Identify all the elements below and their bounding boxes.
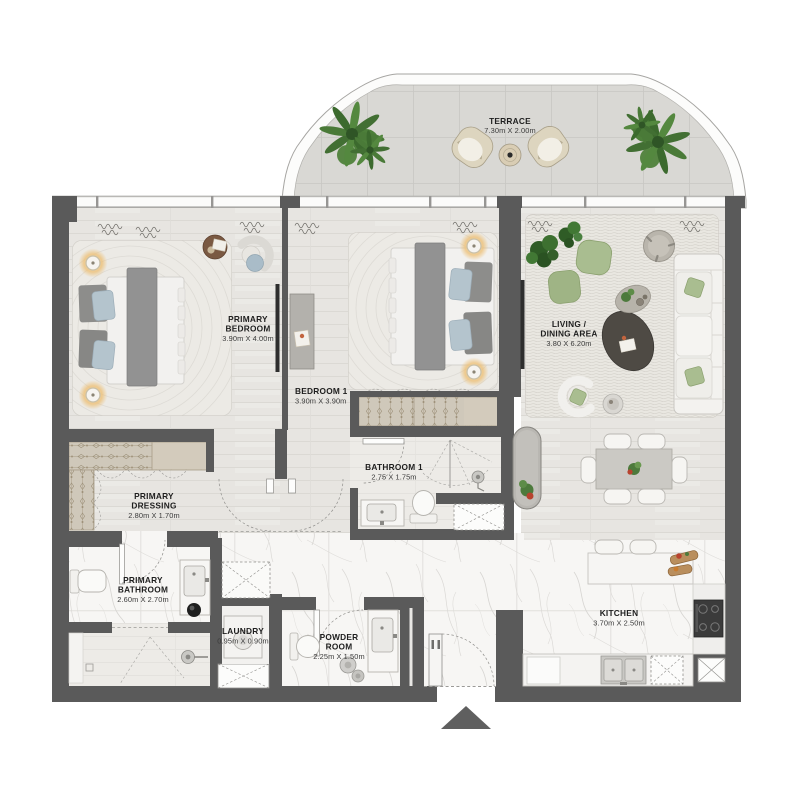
svg-text:3.90m X 3.90m: 3.90m X 3.90m xyxy=(295,397,346,406)
svg-text:2.75 X 1.75m: 2.75 X 1.75m xyxy=(371,473,416,482)
svg-text:DRESSING: DRESSING xyxy=(131,501,176,511)
svg-text:2.60m X 2.70m: 2.60m X 2.70m xyxy=(117,595,168,604)
svg-text:2.25m X 1.50m: 2.25m X 1.50m xyxy=(313,652,364,661)
svg-text:PRIMARY: PRIMARY xyxy=(134,491,174,501)
svg-text:LAUNDRY: LAUNDRY xyxy=(222,626,264,636)
svg-text:PRIMARY: PRIMARY xyxy=(228,314,268,324)
svg-text:3.90m X 4.00m: 3.90m X 4.00m xyxy=(222,334,273,343)
svg-text:7.30m X 2.00m: 7.30m X 2.00m xyxy=(484,126,535,135)
svg-text:KITCHEN: KITCHEN xyxy=(600,608,639,618)
svg-text:3.70m X 2.50m: 3.70m X 2.50m xyxy=(593,619,644,628)
svg-text:DINING AREA: DINING AREA xyxy=(540,329,597,339)
svg-text:BATHROOM: BATHROOM xyxy=(118,585,168,595)
svg-text:BEDROOM 1: BEDROOM 1 xyxy=(295,386,348,396)
svg-text:POWDER: POWDER xyxy=(320,632,359,642)
svg-text:0.95m X 0.90m: 0.95m X 0.90m xyxy=(217,637,268,646)
svg-text:3.80 X 6.20m: 3.80 X 6.20m xyxy=(546,339,591,348)
svg-text:ROOM: ROOM xyxy=(326,642,353,652)
svg-text:PRIMARY: PRIMARY xyxy=(123,575,163,585)
svg-text:BATHROOM 1: BATHROOM 1 xyxy=(365,462,423,472)
svg-text:LIVING /: LIVING / xyxy=(552,319,587,329)
svg-text:BEDROOM: BEDROOM xyxy=(225,324,270,334)
svg-text:2.80m X 1.70m: 2.80m X 1.70m xyxy=(128,511,179,520)
svg-text:TERRACE: TERRACE xyxy=(489,116,531,126)
